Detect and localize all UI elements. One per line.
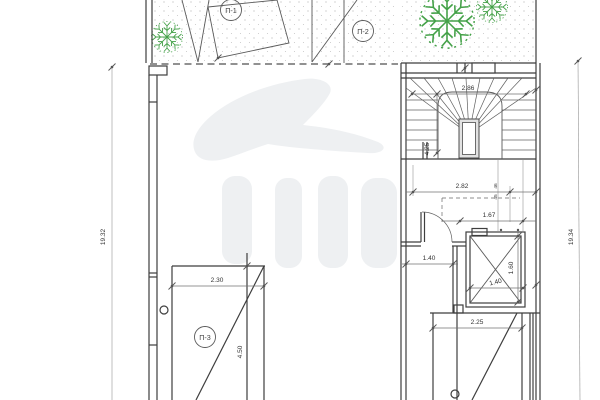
dim-lobby-width: 2.82 — [456, 183, 469, 190]
dim-right-total: 19.34 — [568, 228, 575, 245]
label-area-3: П-3 — [199, 333, 211, 342]
label-area-2: П-2 — [357, 27, 369, 36]
elevator-shaft — [466, 229, 525, 308]
door-swing-icon — [421, 212, 452, 242]
dim-small-lower: 45 — [493, 194, 499, 200]
dashed-detail — [442, 198, 520, 222]
dim-terrace-length: 4.50 — [237, 345, 244, 358]
dim-stair-width: 2.86 — [462, 85, 475, 92]
label-area-1: П-1 — [225, 6, 237, 15]
dim-bottom-width: 2.25 — [471, 319, 484, 326]
floor-plan-canvas: 2.86 4.25 2.82 46 45 1.67 1.40 1.40 1.60… — [0, 0, 600, 400]
dim-lift-depth: 1.60 — [508, 261, 515, 274]
watermark-logo — [193, 79, 397, 268]
dim-left-total: 19.32 — [100, 228, 107, 245]
dim-lift-width: 1.40 — [489, 278, 503, 288]
dim-stair-length: 4.25 — [424, 142, 431, 155]
dim-small-upper: 46 — [493, 183, 499, 189]
dim-door-width: 1.40 — [423, 255, 436, 262]
floor-plan-page: 2.86 4.25 2.82 46 45 1.67 1.40 1.40 1.60… — [0, 0, 600, 400]
dim-terrace-width: 2.30 — [211, 277, 224, 284]
dim-lift-lobby: 1.67 — [483, 212, 496, 219]
